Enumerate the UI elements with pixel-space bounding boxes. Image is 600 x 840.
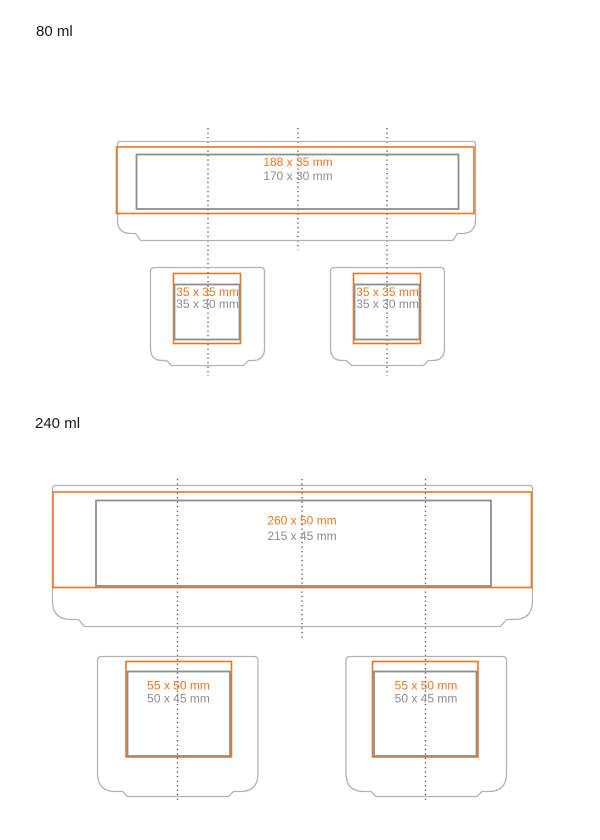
safe-size-label: 170 x 30 mm <box>263 169 332 183</box>
safe-size-label: 50 x 45 mm <box>395 692 458 706</box>
large-view-80ml: 188 x 35 mm 170 x 30 mm <box>117 128 476 376</box>
small-view-right-240ml: 55 x 50 mm 50 x 45 mm <box>346 657 507 797</box>
print-size-label: 188 x 35 mm <box>263 155 332 169</box>
print-area-diagram: 80 ml 188 x 35 mm 170 x 30 mm 35 x 35 mm… <box>0 0 600 840</box>
safe-size-label: 35 x 30 mm <box>176 297 239 311</box>
container-outline <box>53 486 533 627</box>
section-240ml-label: 240 ml <box>35 415 80 432</box>
section-240ml: 240 ml 260 x 50 mm 215 x 45 mm 55 x 50 m… <box>35 415 533 801</box>
safe-size-label: 50 x 45 mm <box>147 692 210 706</box>
safe-size-label: 215 x 45 mm <box>267 529 336 543</box>
print-area-rect <box>126 662 232 758</box>
safe-size-label: 35 x 30 mm <box>356 297 419 311</box>
cup-outline <box>346 657 507 797</box>
print-size-label: 55 x 50 mm <box>147 679 210 693</box>
print-size-label: 55 x 50 mm <box>395 679 458 693</box>
section-80ml: 80 ml 188 x 35 mm 170 x 30 mm 35 x 35 mm… <box>36 23 476 376</box>
section-80ml-label: 80 ml <box>36 23 73 40</box>
print-size-label: 260 x 50 mm <box>267 514 336 528</box>
large-view-240ml: 260 x 50 mm 215 x 45 mm <box>53 479 533 801</box>
diagram-svg: 80 ml 188 x 35 mm 170 x 30 mm 35 x 35 mm… <box>0 0 600 840</box>
